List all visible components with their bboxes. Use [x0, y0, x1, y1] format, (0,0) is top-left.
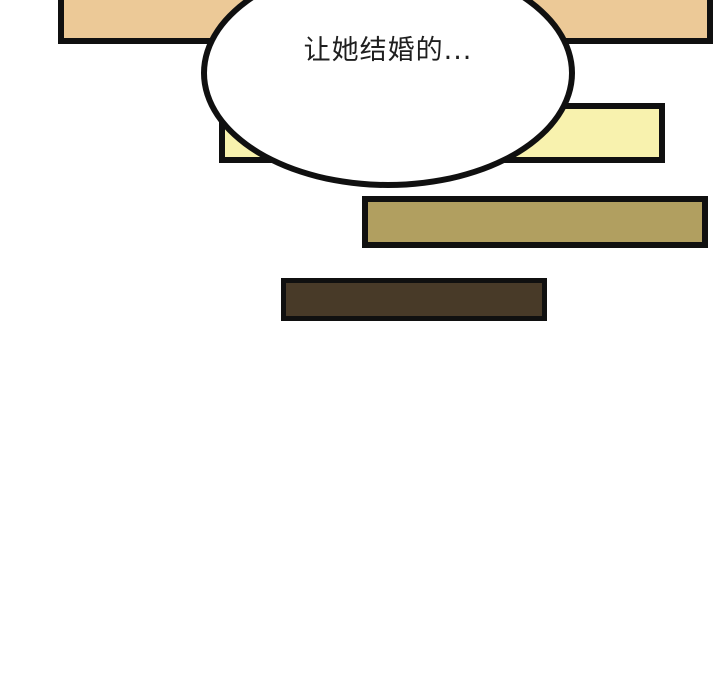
- khaki-bar: [362, 196, 708, 248]
- brown-bar: [281, 278, 547, 321]
- comic-panel: 让她结婚的...: [0, 0, 720, 700]
- speech-bubble-text: 让她结婚的...: [207, 34, 569, 68]
